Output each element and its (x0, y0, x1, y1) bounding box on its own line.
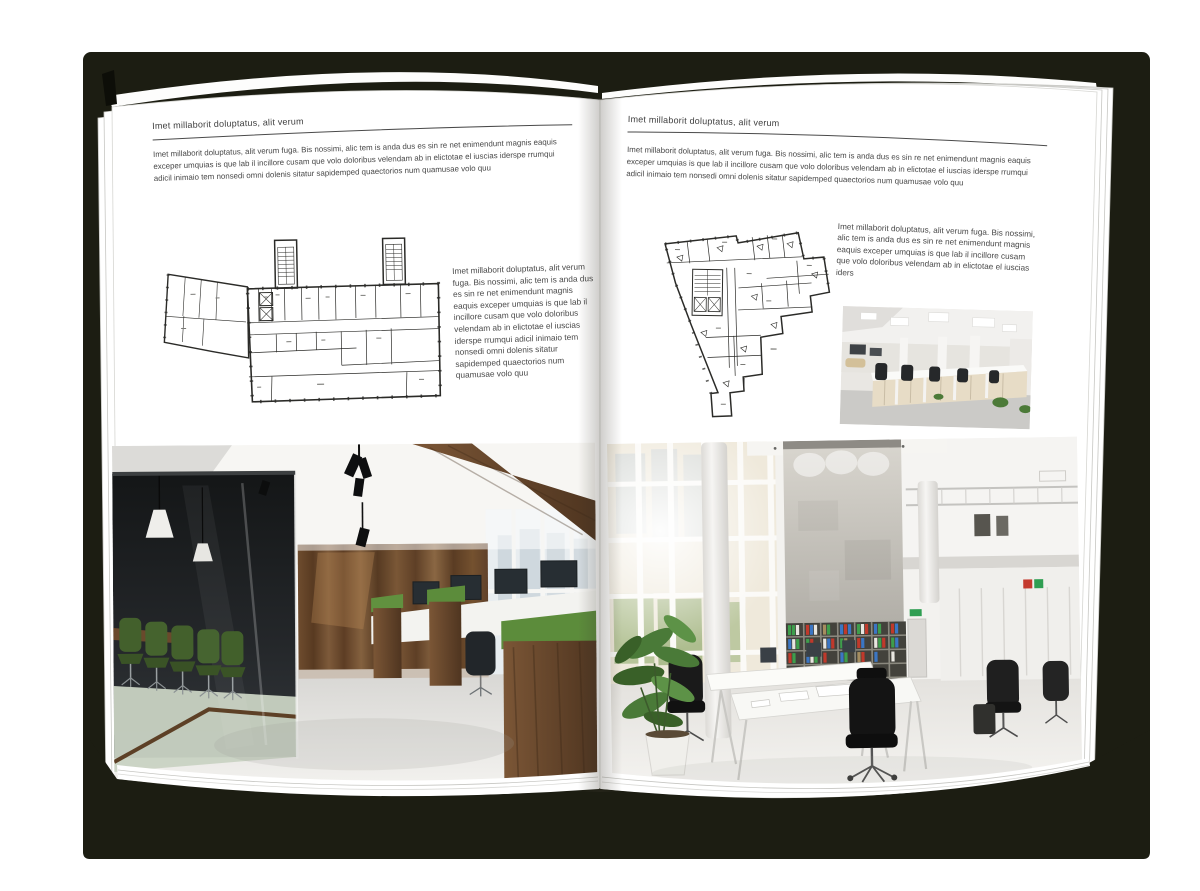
lounge-sofa (845, 358, 865, 368)
safety-sign (1034, 579, 1043, 588)
plan-annotations (673, 237, 812, 406)
floor-plan-left (154, 224, 443, 419)
left-cover-edge (108, 72, 598, 107)
first-aid-sign (1023, 579, 1032, 588)
book-mockup: Imet millaborit doluptatus, alit verum I… (0, 0, 1200, 891)
intro-paragraph: Imet millaborit doluptatus, alit verum f… (153, 136, 568, 185)
side-text-right: Imet millaborit doluptatus, alit verum f… (836, 221, 1042, 287)
floor-plan-right (645, 217, 843, 425)
right-cover-edge (602, 74, 1097, 99)
column (701, 442, 732, 738)
side-text-left: Imet millaborit doluptatus, alit verum f… (452, 261, 597, 382)
column (918, 481, 940, 603)
left-page-header-block: Imet millaborit doluptatus, alit verum I… (152, 108, 574, 185)
photo-small-office (840, 306, 1033, 429)
trash-bin (973, 704, 995, 734)
right-page-header-block: Imet millaborit doluptatus, alit verum I… (626, 114, 1048, 192)
exit-sign (910, 609, 922, 616)
cover-notch (102, 70, 117, 106)
photo-white-atrium-office (607, 437, 1082, 789)
photo-dark-wood-office (112, 443, 597, 786)
concrete-wall (783, 439, 904, 623)
intro-paragraph: Imet millaborit doluptatus, alit verum f… (626, 144, 1039, 192)
plan-annotations (181, 290, 425, 389)
